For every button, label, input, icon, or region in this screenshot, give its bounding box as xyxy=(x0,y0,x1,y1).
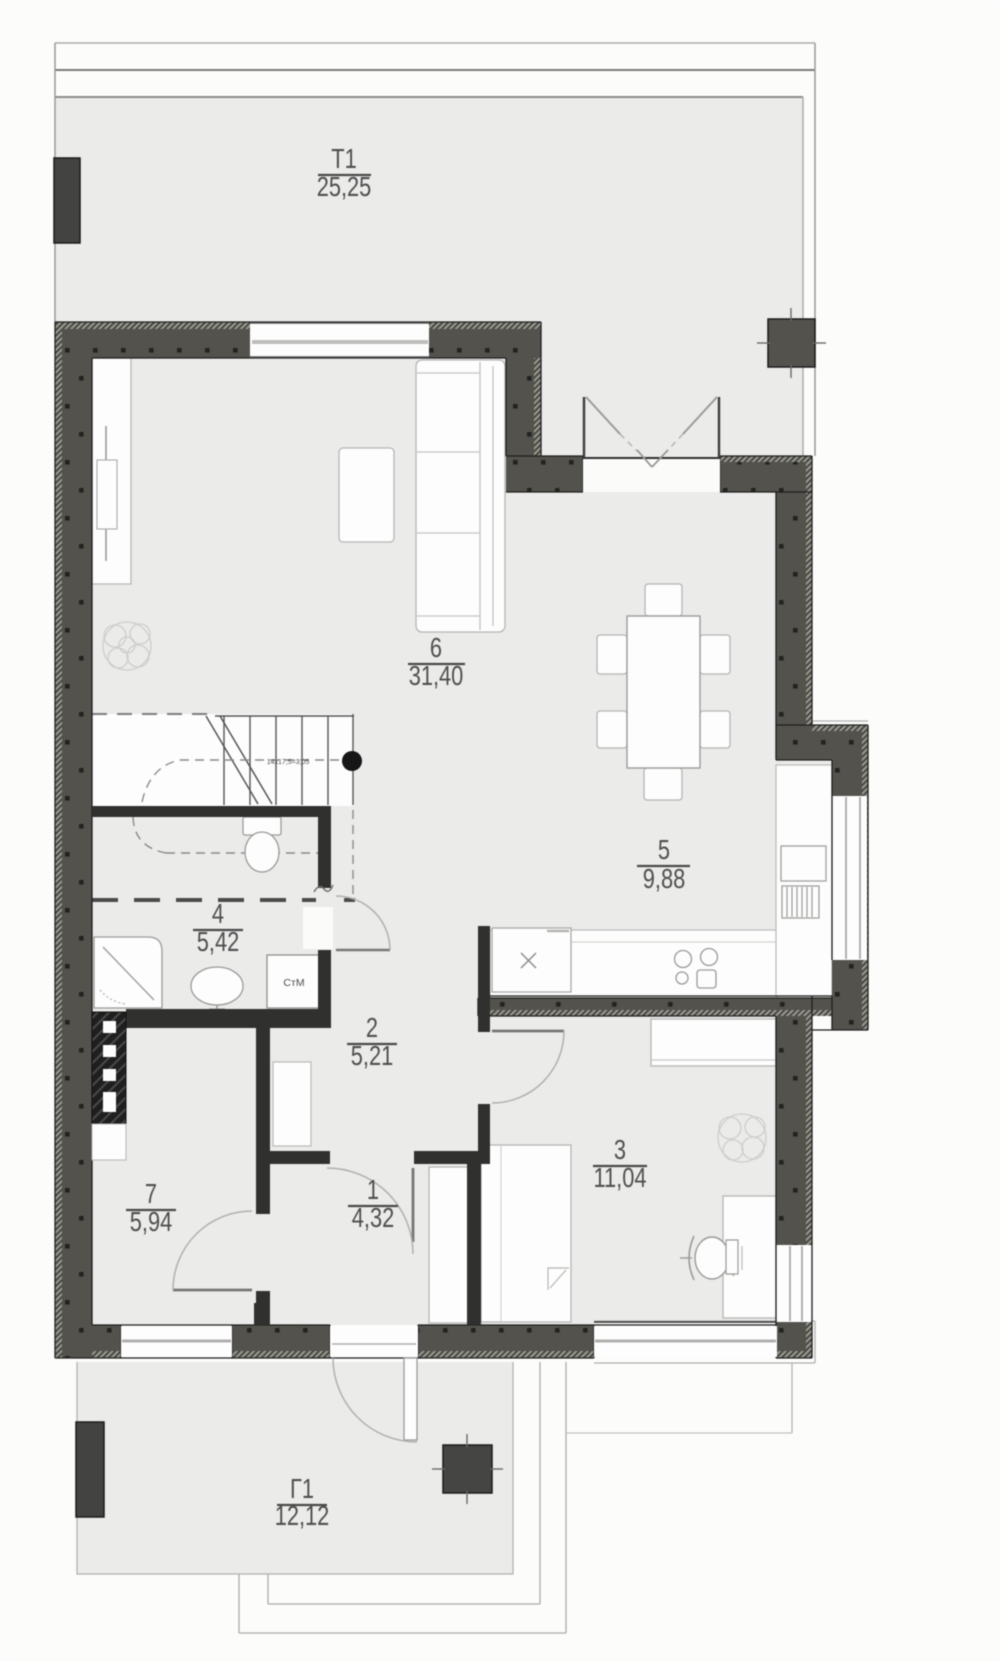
svg-text:5,94: 5,94 xyxy=(130,1206,173,1237)
svg-text:5: 5 xyxy=(658,834,670,865)
svg-text:4,32: 4,32 xyxy=(352,1202,394,1233)
svg-text:1: 1 xyxy=(367,1174,379,1205)
svg-text:3: 3 xyxy=(614,1134,626,1165)
svg-text:СтМ: СтМ xyxy=(283,977,304,989)
svg-text:2: 2 xyxy=(366,1012,378,1043)
svg-text:5,42: 5,42 xyxy=(197,926,239,957)
svg-text:9,88: 9,88 xyxy=(643,863,685,894)
svg-text:4: 4 xyxy=(212,898,224,929)
svg-text:T1: T1 xyxy=(331,143,356,174)
svg-text:14x17,5=3,05: 14x17,5=3,05 xyxy=(267,759,310,766)
svg-text:11,04: 11,04 xyxy=(593,1162,646,1193)
svg-text:31,40: 31,40 xyxy=(409,660,464,691)
svg-text:5,21: 5,21 xyxy=(351,1040,393,1071)
svg-text:7: 7 xyxy=(145,1178,157,1209)
svg-text:6: 6 xyxy=(430,632,442,663)
svg-text:25,25: 25,25 xyxy=(317,171,372,202)
